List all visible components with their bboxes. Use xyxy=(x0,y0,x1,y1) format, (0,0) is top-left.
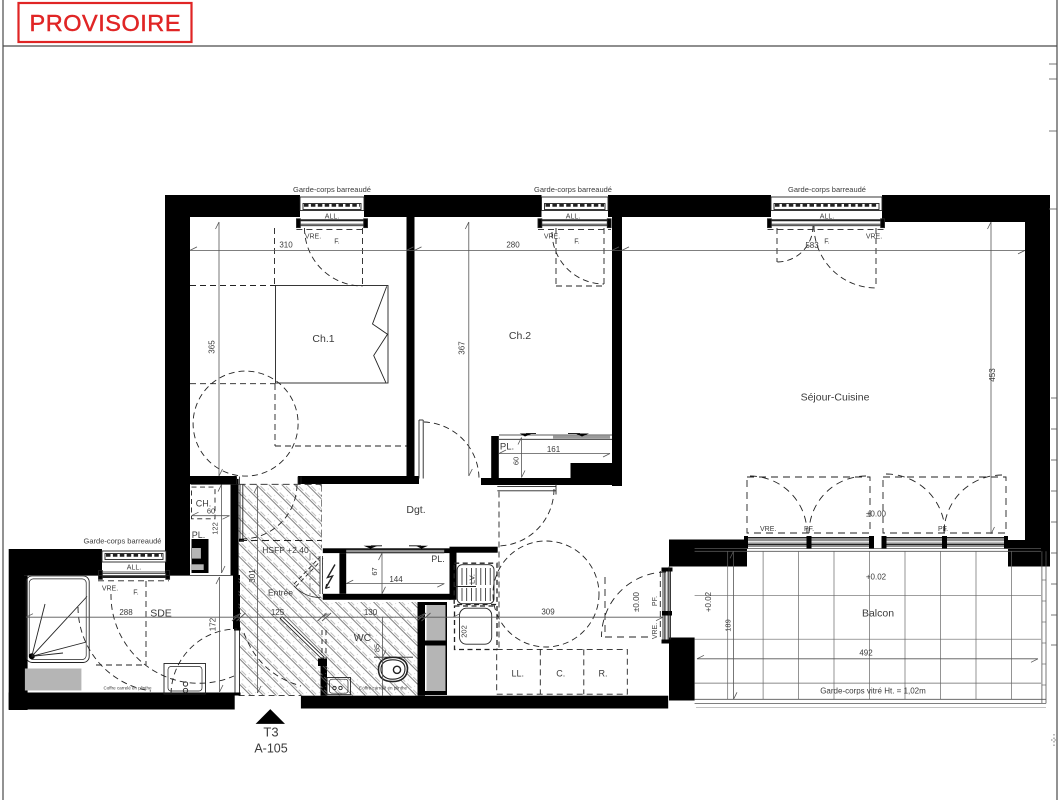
svg-text:R.: R. xyxy=(599,669,608,679)
svg-text:85: 85 xyxy=(373,644,382,652)
svg-text:189: 189 xyxy=(724,619,733,632)
svg-text:60: 60 xyxy=(512,457,521,465)
svg-text:VRE.: VRE. xyxy=(305,234,321,241)
svg-text:202: 202 xyxy=(460,625,469,638)
svg-text:309: 309 xyxy=(541,608,555,617)
svg-text:Entrée: Entrée xyxy=(268,588,293,598)
svg-text:ALL.: ALL. xyxy=(127,565,141,572)
svg-text:VRE.: VRE. xyxy=(760,526,776,533)
svg-text:F.: F. xyxy=(133,590,139,597)
svg-text:144: 144 xyxy=(389,575,403,584)
svg-text:492: 492 xyxy=(859,649,873,658)
svg-text:PROVISOIRE: PROVISOIRE xyxy=(30,10,181,36)
svg-text:Coffre carrelé en plinthe: Coffre carrelé en plinthe xyxy=(104,686,152,691)
svg-text:583: 583 xyxy=(805,241,819,250)
svg-text:PF.: PF. xyxy=(804,526,814,533)
svg-text:F.: F. xyxy=(824,239,830,246)
svg-text:WC: WC xyxy=(354,632,372,644)
svg-text:LV.: LV. xyxy=(468,574,477,584)
svg-text:VRE.: VRE. xyxy=(652,623,659,639)
svg-text:PF.: PF. xyxy=(938,526,948,533)
svg-text:161: 161 xyxy=(547,445,561,454)
svg-text:67: 67 xyxy=(370,567,379,575)
svg-text:125: 125 xyxy=(271,608,285,617)
svg-text:Garde-corps vitré Ht. = 1,02m: Garde-corps vitré Ht. = 1,02m xyxy=(820,687,926,696)
svg-text:Ch.2: Ch.2 xyxy=(509,330,531,342)
svg-text:Séjour-Cuisine: Séjour-Cuisine xyxy=(801,392,870,404)
svg-text:Balcon: Balcon xyxy=(862,608,894,620)
svg-text:310: 310 xyxy=(279,241,293,250)
svg-text:SDE: SDE xyxy=(150,608,172,620)
svg-text:Garde-corps barreaudé: Garde-corps barreaudé xyxy=(788,185,866,194)
svg-text:±0.00: ±0.00 xyxy=(632,591,641,612)
svg-text:HSFP +2.40: HSFP +2.40 xyxy=(262,545,309,555)
svg-text:Dgt.: Dgt. xyxy=(406,504,425,516)
svg-text:PL.: PL. xyxy=(431,554,445,564)
svg-text:PL.: PL. xyxy=(500,442,514,453)
svg-text:367: 367 xyxy=(458,341,467,355)
svg-text:+0.02: +0.02 xyxy=(704,591,713,612)
svg-text:VRE.: VRE. xyxy=(102,586,118,593)
svg-text:Coffre carrelé en plinthe: Coffre carrelé en plinthe xyxy=(359,686,407,691)
svg-text:F.: F. xyxy=(574,239,580,246)
svg-text:T3: T3 xyxy=(263,725,278,740)
svg-text:453: 453 xyxy=(988,368,997,382)
svg-text:288: 288 xyxy=(119,608,133,617)
svg-text:PF.: PF. xyxy=(652,596,659,606)
svg-text:A-105: A-105 xyxy=(254,742,287,756)
svg-text:Garde-corps barreaudé: Garde-corps barreaudé xyxy=(293,185,371,194)
svg-text:±0.00: ±0.00 xyxy=(866,510,887,519)
svg-text:Garde-corps barreaudé: Garde-corps barreaudé xyxy=(534,185,612,194)
svg-text:+0.02: +0.02 xyxy=(866,573,887,582)
svg-text:301: 301 xyxy=(248,569,257,583)
svg-text:C.: C. xyxy=(556,669,565,679)
svg-text:130: 130 xyxy=(364,608,378,617)
svg-text:PL.: PL. xyxy=(192,530,206,540)
svg-text:LL.: LL. xyxy=(512,669,525,679)
svg-text:Ch.1: Ch.1 xyxy=(312,333,334,345)
svg-text:VRE.: VRE. xyxy=(866,234,882,241)
svg-text:Garde-corps barreaudé: Garde-corps barreaudé xyxy=(84,537,162,546)
svg-text:60: 60 xyxy=(207,507,215,516)
svg-text:172: 172 xyxy=(209,617,218,631)
svg-text:280: 280 xyxy=(506,241,520,250)
svg-text:365: 365 xyxy=(208,340,217,354)
svg-text:F.: F. xyxy=(334,239,340,246)
svg-text:122: 122 xyxy=(211,522,220,535)
